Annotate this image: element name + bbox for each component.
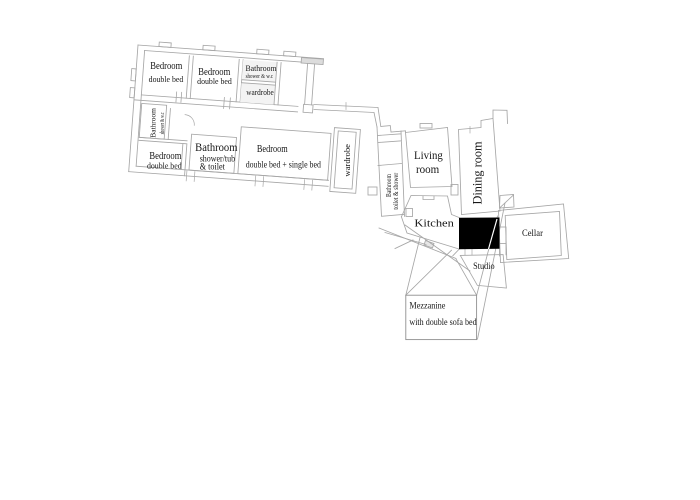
svg-text:Bedroom: Bedroom <box>257 144 288 155</box>
svg-text:double bed: double bed <box>149 74 184 84</box>
svg-text:Bathroom: Bathroom <box>148 108 157 138</box>
svg-text:Bathroom: Bathroom <box>246 64 278 73</box>
svg-text:toilet & shower: toilet & shower <box>391 172 400 209</box>
svg-text:wardrobe: wardrobe <box>246 87 274 97</box>
svg-text:Bedroom: Bedroom <box>150 61 182 72</box>
svg-text:Living: Living <box>414 148 443 162</box>
svg-text:double bed: double bed <box>197 76 232 86</box>
svg-text:double bed + single bed: double bed + single bed <box>246 159 322 169</box>
svg-text:Bathroom: Bathroom <box>195 142 237 154</box>
svg-text:wardrobe: wardrobe <box>343 143 352 176</box>
svg-text:shower & w.c: shower & w.c <box>160 112 166 134</box>
svg-text:& toilet: & toilet <box>200 162 226 172</box>
svg-text:room: room <box>416 162 440 176</box>
svg-text:Dining room: Dining room <box>470 142 485 205</box>
svg-text:Cellar: Cellar <box>522 229 544 239</box>
svg-text:Studio: Studio <box>473 262 495 272</box>
svg-text:Kitchen: Kitchen <box>414 217 454 229</box>
svg-text:Mezzanine: Mezzanine <box>409 300 445 310</box>
svg-text:double bed: double bed <box>147 160 182 170</box>
svg-text:with double sofa bed: with double sofa bed <box>409 317 477 327</box>
svg-text:shower & w.c: shower & w.c <box>246 74 274 80</box>
